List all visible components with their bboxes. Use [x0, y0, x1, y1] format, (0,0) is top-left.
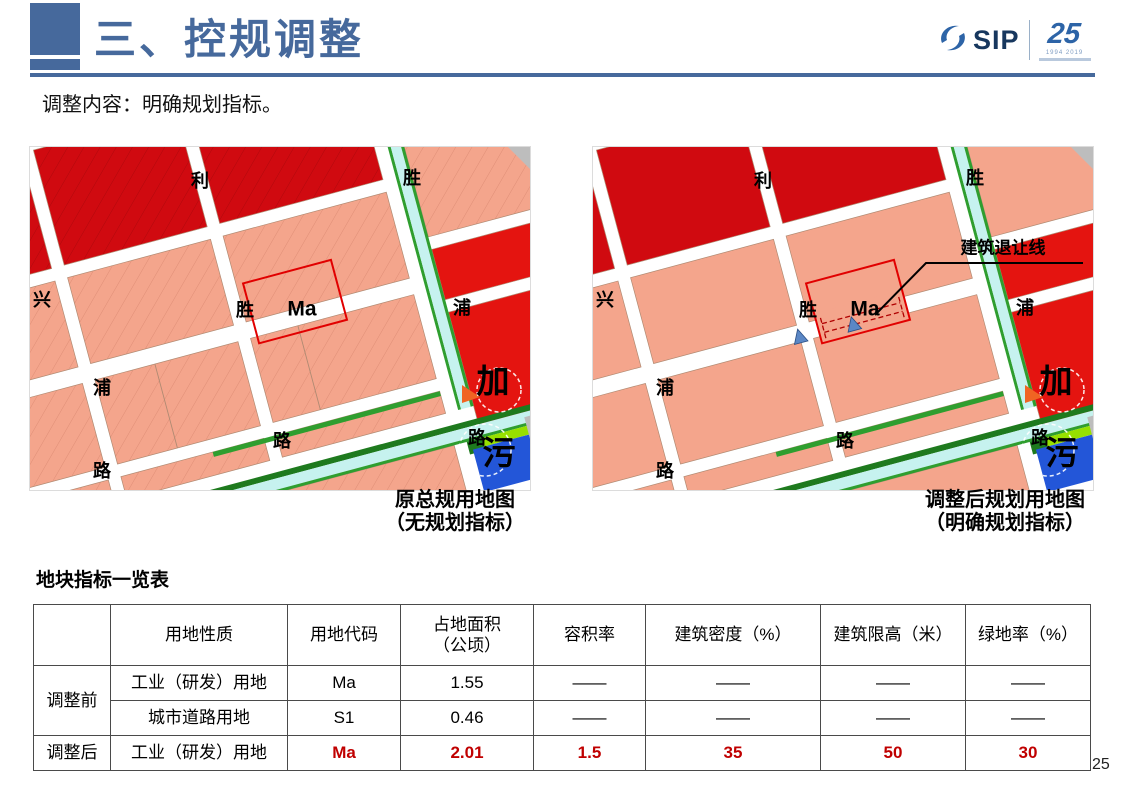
- header-cell-land-use: 用地性质: [111, 605, 288, 666]
- header-cell-green: 绿地率（%）: [966, 605, 1091, 666]
- table-cell: 2.01: [401, 736, 534, 771]
- table-cell: 1.5: [534, 736, 646, 771]
- table-cell: 城市道路用地: [111, 701, 288, 736]
- slide: 三、控规调整 SIP 25 1994 2019 调整内容：明确规划指标。 利胜兴…: [0, 0, 1123, 794]
- map-label-pu_right: 浦: [453, 297, 471, 318]
- table-cell: ——: [646, 701, 821, 736]
- table-cell: S1: [288, 701, 401, 736]
- table-cell: ——: [966, 701, 1091, 736]
- map-label-sheng_mid: 胜: [236, 300, 254, 320]
- header-cell-density: 建筑密度（%）: [646, 605, 821, 666]
- logo-divider: [1029, 20, 1030, 60]
- table-cell: ——: [534, 666, 646, 701]
- map-label-li: 利: [191, 170, 209, 191]
- map-label-pu_left: 浦: [93, 377, 111, 398]
- map-label-lu_center: 路: [273, 430, 292, 451]
- table-cell: 35: [646, 736, 821, 771]
- table-cell: ——: [534, 701, 646, 736]
- table-cell: 0.46: [401, 701, 534, 736]
- map-label-pu_left: 浦: [656, 377, 674, 398]
- anniversary-subtext-bar: [1039, 58, 1091, 61]
- after-caption-line1: 调整后规划用地图: [880, 489, 1123, 512]
- header-cell-far: 容积率: [534, 605, 646, 666]
- sip-logo: SIP 25 1994 2019: [936, 14, 1111, 66]
- after-map: 利胜兴胜Ma浦浦路路路加污建筑退让线: [593, 147, 1093, 490]
- map-label-jia: 加: [477, 363, 510, 400]
- setback-annotation-label: 建筑退让线: [961, 238, 1046, 258]
- before-map-canvas: 利胜兴胜Ma浦浦路路路加污: [30, 147, 530, 490]
- header-rule: [30, 73, 1095, 77]
- table-cell: ——: [821, 666, 966, 701]
- map-label-lu_bottom_left: 路: [93, 460, 112, 481]
- before-caption-line2: （无规划指标）: [330, 512, 580, 535]
- header-cell-area: 占地面积 （公顷）: [401, 605, 534, 666]
- before-caption-line1: 原总规用地图: [330, 489, 580, 512]
- table-cell: ——: [646, 666, 821, 701]
- header-area-line2: （公顷）: [403, 635, 531, 656]
- map-label-xing: 兴: [33, 290, 51, 310]
- table-cell: 工业（研发）用地: [111, 666, 288, 701]
- table-cell: ——: [966, 666, 1091, 701]
- title-decoration-square: [30, 3, 80, 55]
- map-label-ma: Ma: [850, 298, 879, 321]
- map-label-lu_center: 路: [836, 430, 855, 451]
- row-group-before: 调整前: [34, 666, 111, 736]
- subtitle: 调整内容：明确规划指标。: [42, 88, 282, 117]
- map-label-sheng_top: 胜: [403, 168, 421, 188]
- table-row: 城市道路用地 S1 0.46 —— —— —— ——: [34, 701, 1091, 736]
- table-cell: 30: [966, 736, 1091, 771]
- header-cell-code: 用地代码: [288, 605, 401, 666]
- table-cell: 50: [821, 736, 966, 771]
- table-cell: 1.55: [401, 666, 534, 701]
- header-cell-height: 建筑限高（米）: [821, 605, 966, 666]
- table-title: 地块指标一览表: [36, 565, 169, 592]
- sip-swoosh-icon: [936, 21, 970, 60]
- table-cell: Ma: [288, 736, 401, 771]
- map-label-lu_bottom_left: 路: [656, 460, 675, 481]
- map-label-wu: 污: [483, 435, 516, 472]
- page-title: 三、控规调整: [94, 6, 364, 67]
- anniversary-logo: 25 1994 2019: [1039, 20, 1091, 61]
- after-caption-line2: （明确规划指标）: [880, 512, 1123, 535]
- row-group-after: 调整后: [34, 736, 111, 771]
- plot-indicators-table: 用地性质 用地代码 占地面积 （公顷） 容积率 建筑密度（%） 建筑限高（米） …: [33, 604, 1091, 771]
- title-decoration-bar: [30, 59, 80, 70]
- anniversary-number: 25: [1047, 20, 1082, 49]
- after-map-caption: 调整后规划用地图 （明确规划指标）: [880, 489, 1123, 535]
- before-map-caption: 原总规用地图 （无规划指标）: [330, 489, 580, 535]
- map-label-xing: 兴: [596, 290, 614, 310]
- table-row: 调整后 工业（研发）用地 Ma 2.01 1.5 35 50 30: [34, 736, 1091, 771]
- header-area-line1: 占地面积: [403, 614, 531, 635]
- map-label-pu_right: 浦: [1016, 297, 1034, 318]
- map-label-sheng_mid: 胜: [799, 300, 817, 320]
- sip-logo-text: SIP: [973, 25, 1020, 56]
- table-row: 调整前 工业（研发）用地 Ma 1.55 —— —— —— ——: [34, 666, 1091, 701]
- table-header-row: 用地性质 用地代码 占地面积 （公顷） 容积率 建筑密度（%） 建筑限高（米） …: [34, 605, 1091, 666]
- map-label-sheng_top: 胜: [966, 168, 984, 188]
- table-cell: ——: [821, 701, 966, 736]
- header-cell-blank: [34, 605, 111, 666]
- map-label-li: 利: [754, 170, 772, 191]
- map-label-wu: 污: [1046, 435, 1079, 472]
- map-label-ma: Ma: [287, 298, 316, 321]
- table-cell: 工业（研发）用地: [111, 736, 288, 771]
- page-number: 25: [1092, 756, 1110, 774]
- table-cell: Ma: [288, 666, 401, 701]
- map-label-jia: 加: [1040, 363, 1073, 400]
- anniversary-years: 1994 2019: [1046, 50, 1083, 56]
- before-map: 利胜兴胜Ma浦浦路路路加污: [30, 147, 530, 490]
- after-map-canvas: 利胜兴胜Ma浦浦路路路加污建筑退让线: [593, 147, 1093, 490]
